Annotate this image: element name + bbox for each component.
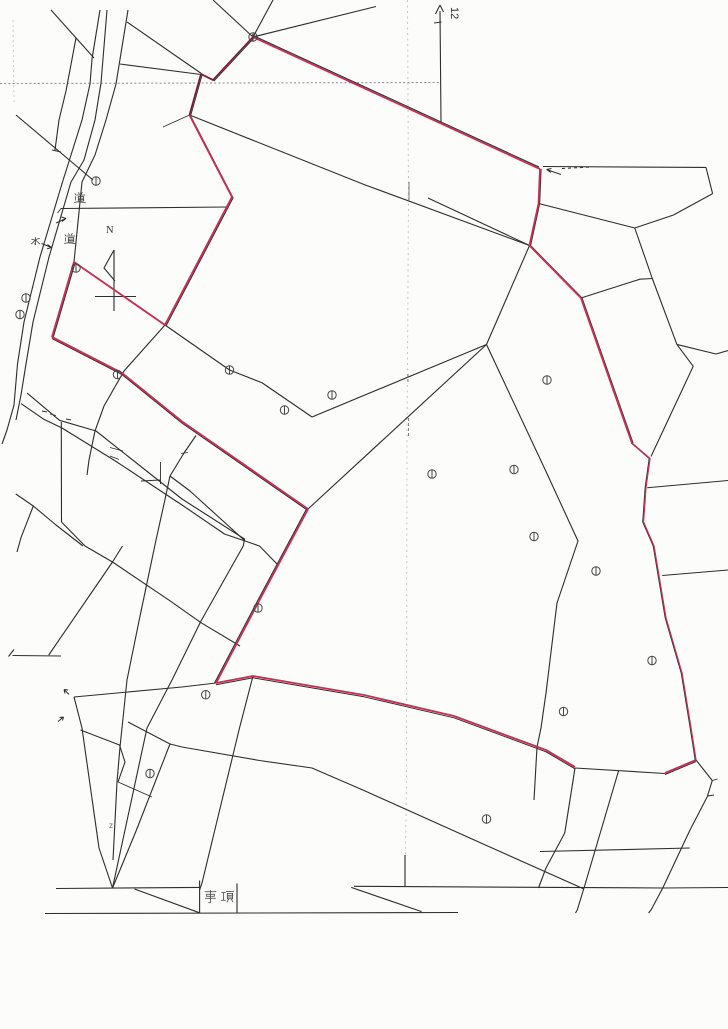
svg-text:z: z (109, 821, 113, 830)
svg-text:N: N (106, 225, 114, 236)
svg-text:12: 12 (448, 7, 460, 19)
